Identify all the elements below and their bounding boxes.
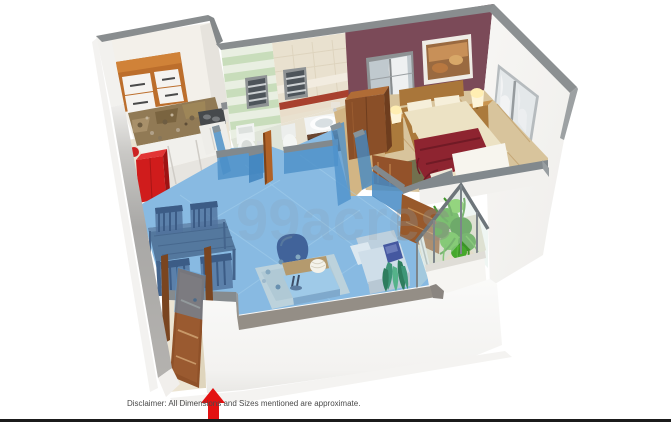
svg-text:Disclaimer: All Dimensions and: Disclaimer: All Dimensions and Sizes men… bbox=[127, 399, 360, 408]
